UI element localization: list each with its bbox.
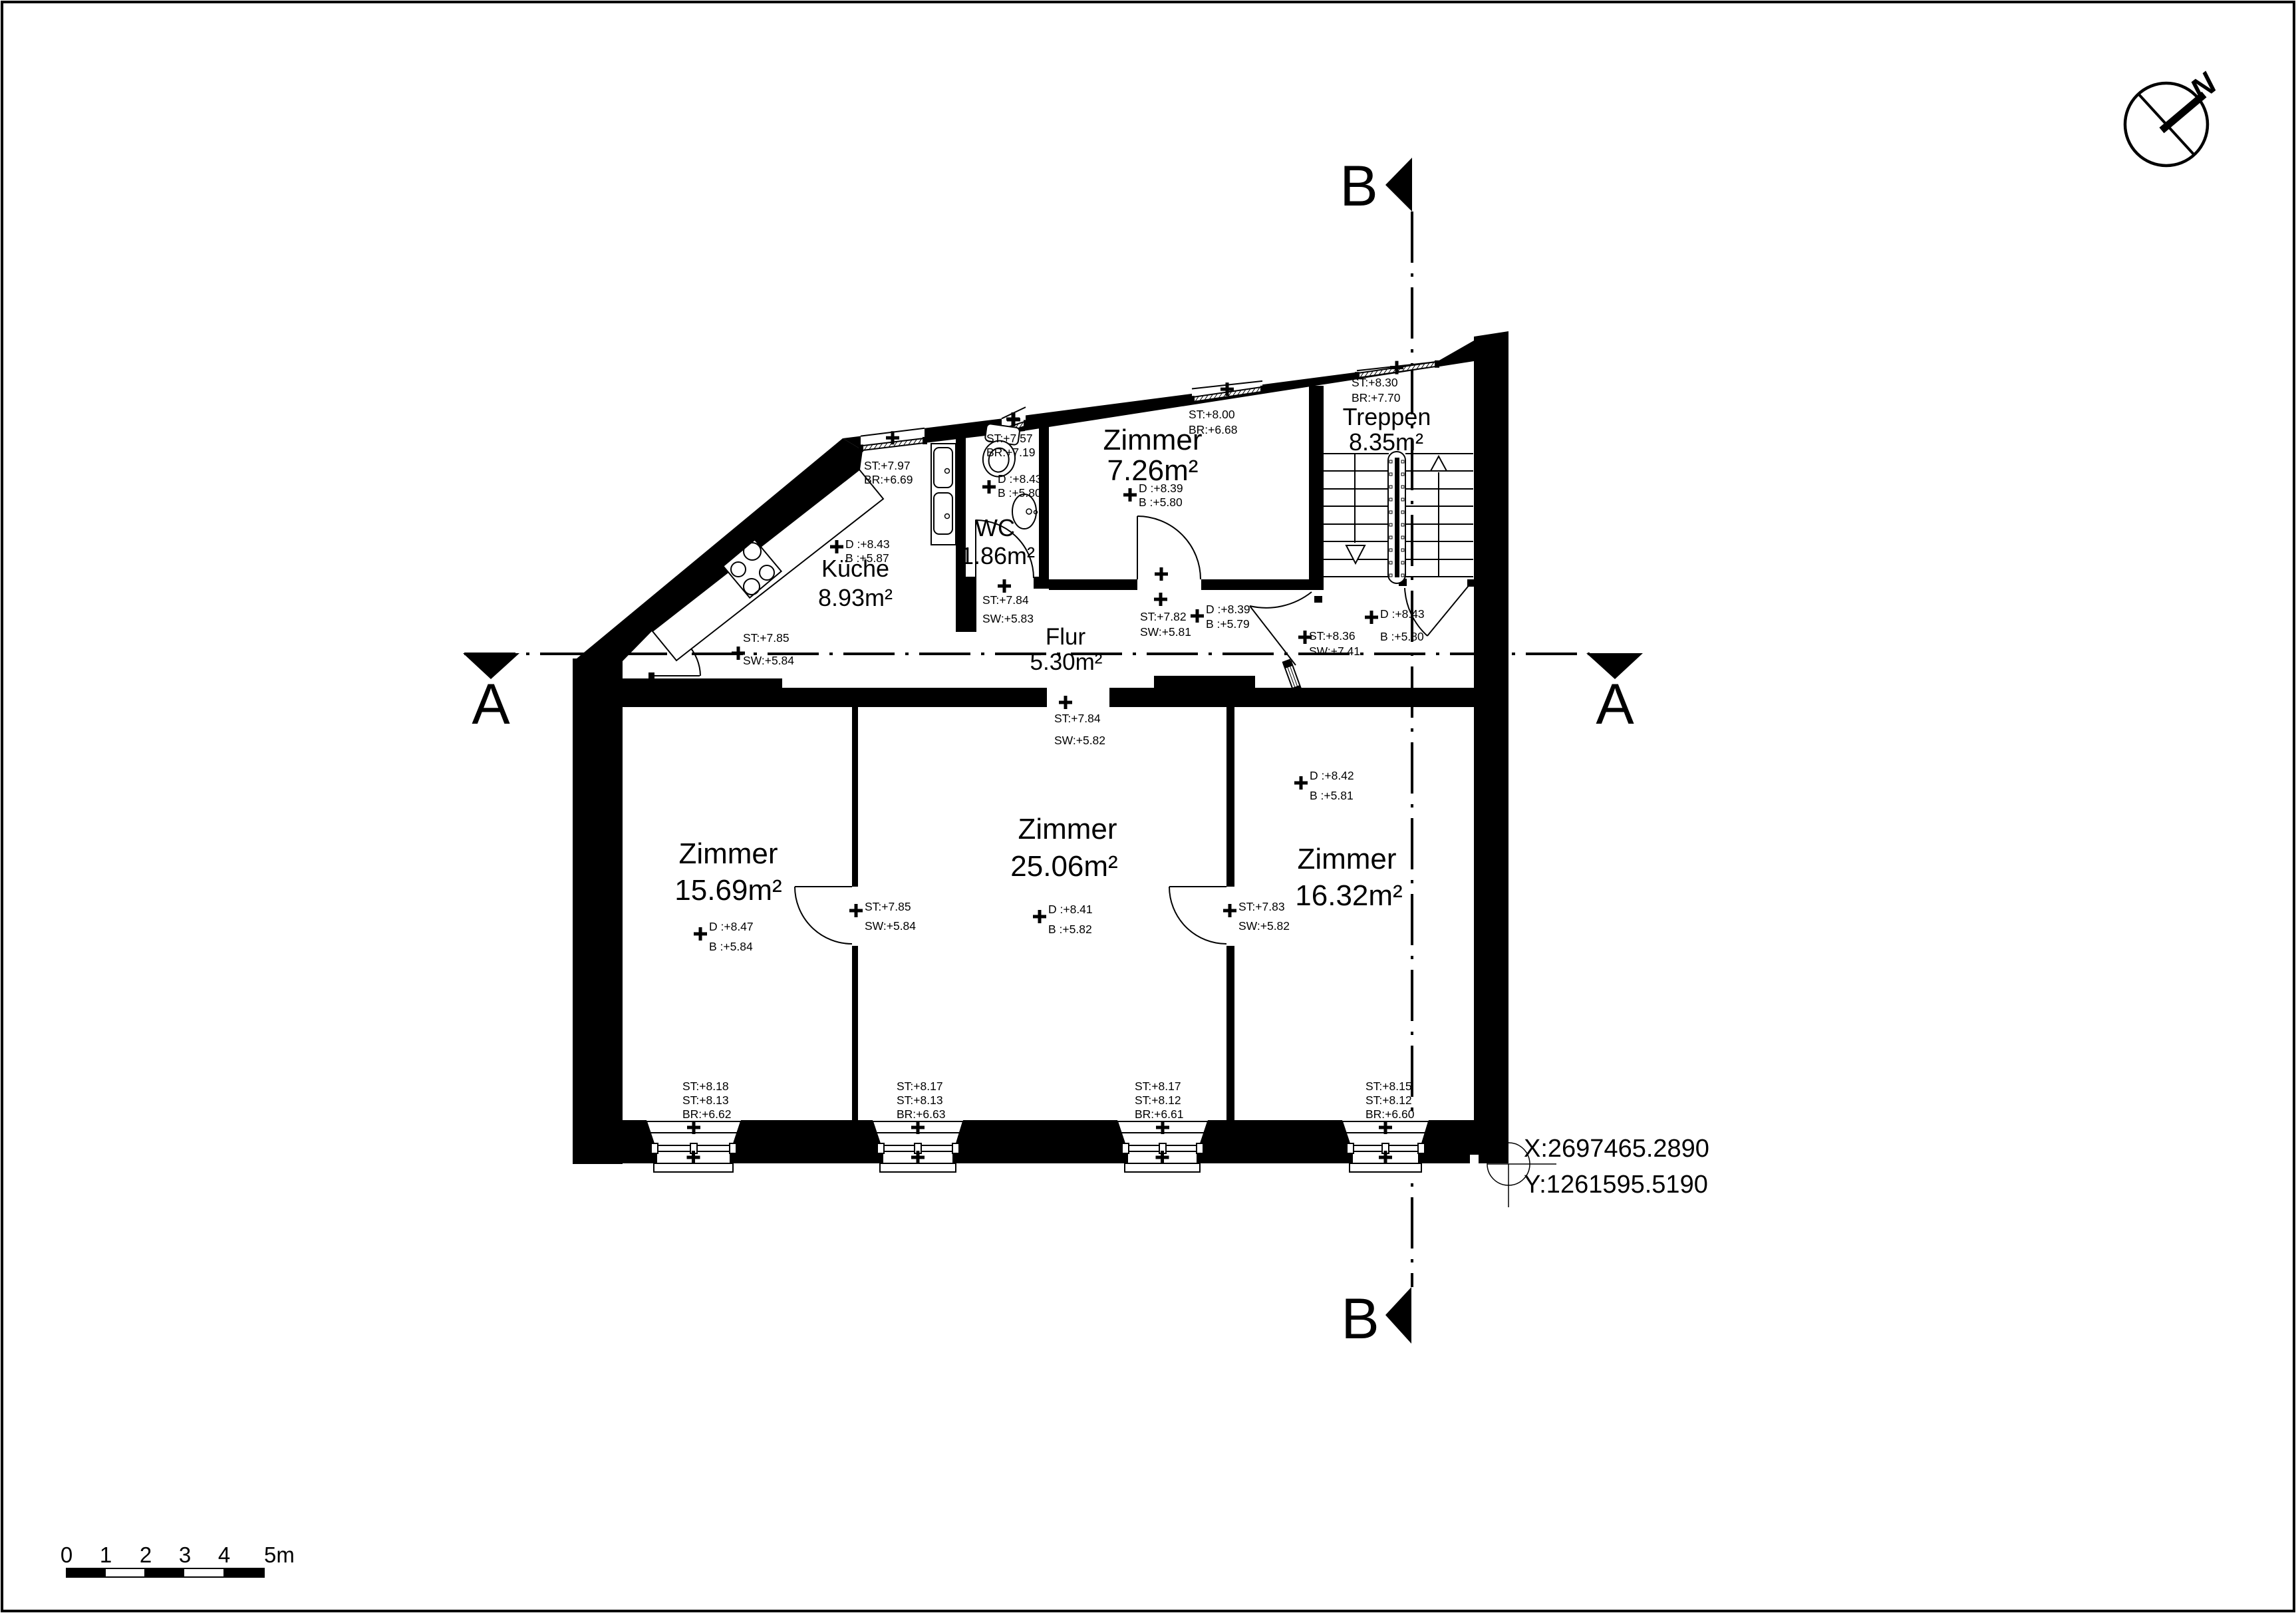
svg-text:8.35m²: 8.35m² <box>1349 428 1423 456</box>
svg-text:ST:+7.85: ST:+7.85 <box>865 900 911 913</box>
svg-text:D :+8.43: D :+8.43 <box>998 472 1042 486</box>
svg-text:Zimmer: Zimmer <box>1103 424 1202 456</box>
svg-text:7.26m²: 7.26m² <box>1107 454 1199 487</box>
svg-text:ST:+8.17: ST:+8.17 <box>897 1080 943 1093</box>
svg-text:ST:+8.13: ST:+8.13 <box>897 1094 943 1107</box>
svg-text:Treppen: Treppen <box>1343 403 1431 430</box>
svg-text:ST:+7.84: ST:+7.84 <box>982 593 1029 607</box>
svg-text:ST:+7.82: ST:+7.82 <box>1140 610 1187 623</box>
svg-text:BR:+7.19: BR:+7.19 <box>986 446 1035 459</box>
svg-text:A: A <box>1596 672 1634 736</box>
svg-text:2: 2 <box>140 1542 152 1567</box>
svg-text:5.30m²: 5.30m² <box>1030 649 1103 675</box>
svg-text:16.32m²: 16.32m² <box>1295 879 1402 912</box>
svg-text:ST:+7.97: ST:+7.97 <box>864 459 911 472</box>
svg-text:D :+8.43: D :+8.43 <box>845 537 890 551</box>
svg-text:ST:+8.36: ST:+8.36 <box>1309 629 1356 643</box>
svg-text:A: A <box>472 672 510 736</box>
svg-text:D :+8.43: D :+8.43 <box>1380 607 1425 621</box>
svg-text:X:2697465.2890: X:2697465.2890 <box>1524 1135 1709 1163</box>
svg-text:Küche: Küche <box>821 555 889 582</box>
svg-text:5m: 5m <box>264 1542 295 1567</box>
svg-text:SW:+5.84: SW:+5.84 <box>743 654 794 667</box>
svg-text:ST:+8.18: ST:+8.18 <box>682 1080 729 1093</box>
svg-text:D :+8.47: D :+8.47 <box>709 920 754 933</box>
svg-text:SW:+5.81: SW:+5.81 <box>1140 625 1191 639</box>
svg-text:B :+5.79: B :+5.79 <box>1206 617 1250 631</box>
svg-text:BR:+6.62: BR:+6.62 <box>682 1107 731 1121</box>
svg-text:D :+8.42: D :+8.42 <box>1310 769 1354 782</box>
svg-text:SW:+5.82: SW:+5.82 <box>1054 734 1105 747</box>
svg-text:D :+8.41: D :+8.41 <box>1048 903 1093 916</box>
svg-text:SW:+7.41: SW:+7.41 <box>1309 645 1360 658</box>
svg-text:0: 0 <box>61 1542 72 1567</box>
svg-text:BR:+6.69: BR:+6.69 <box>864 473 913 486</box>
svg-text:Y:1261595.5190: Y:1261595.5190 <box>1524 1171 1708 1199</box>
svg-text:D :+8.39: D :+8.39 <box>1206 603 1250 616</box>
svg-text:15.69m²: 15.69m² <box>674 874 782 907</box>
svg-text:ST:+7.57: ST:+7.57 <box>986 432 1033 445</box>
svg-text:8.93m²: 8.93m² <box>818 584 893 611</box>
svg-text:BR:+7.70: BR:+7.70 <box>1352 391 1401 404</box>
svg-text:ST:+7.85: ST:+7.85 <box>743 631 789 645</box>
svg-text:B :+5.80: B :+5.80 <box>1139 496 1183 509</box>
svg-text:ST:+8.15: ST:+8.15 <box>1365 1080 1412 1093</box>
svg-text:B: B <box>1340 154 1377 218</box>
svg-text:BR:+6.60: BR:+6.60 <box>1365 1107 1415 1121</box>
svg-text:ST:+8.12: ST:+8.12 <box>1365 1094 1412 1107</box>
svg-text:SW:+5.84: SW:+5.84 <box>865 919 916 933</box>
svg-text:B: B <box>1341 1287 1379 1351</box>
svg-text:WC: WC <box>975 514 1015 541</box>
svg-text:4: 4 <box>218 1542 230 1567</box>
svg-text:ST:+7.83: ST:+7.83 <box>1238 900 1285 913</box>
svg-text:B :+5.82: B :+5.82 <box>1048 923 1092 936</box>
svg-text:Zimmer: Zimmer <box>1297 843 1396 875</box>
svg-text:B :+5.81: B :+5.81 <box>1310 789 1354 802</box>
svg-text:ST:+8.12: ST:+8.12 <box>1135 1094 1181 1107</box>
svg-text:SW:+5.83: SW:+5.83 <box>982 612 1034 625</box>
svg-text:ST:+7.84: ST:+7.84 <box>1054 712 1101 725</box>
svg-text:Zimmer: Zimmer <box>678 837 778 870</box>
svg-text:ST:+8.13: ST:+8.13 <box>682 1094 729 1107</box>
svg-text:Flur: Flur <box>1046 624 1086 650</box>
svg-text:1: 1 <box>100 1542 112 1567</box>
svg-text:B :+5.80: B :+5.80 <box>998 486 1042 500</box>
svg-text:ST:+8.00: ST:+8.00 <box>1189 408 1235 421</box>
svg-text:25.06m²: 25.06m² <box>1010 850 1117 883</box>
svg-text:BR:+6.63: BR:+6.63 <box>897 1107 945 1121</box>
svg-text:BR:+6.61: BR:+6.61 <box>1135 1107 1183 1121</box>
svg-text:B :+5.80: B :+5.80 <box>1380 630 1424 643</box>
svg-text:ST:+8.30: ST:+8.30 <box>1352 376 1398 389</box>
svg-text:1.86m²: 1.86m² <box>960 542 1035 569</box>
svg-text:B :+5.84: B :+5.84 <box>709 940 753 953</box>
svg-text:Zimmer: Zimmer <box>1018 813 1117 845</box>
svg-text:SW:+5.82: SW:+5.82 <box>1238 919 1290 933</box>
svg-text:3: 3 <box>179 1542 191 1567</box>
svg-text:ST:+8.17: ST:+8.17 <box>1135 1080 1181 1093</box>
